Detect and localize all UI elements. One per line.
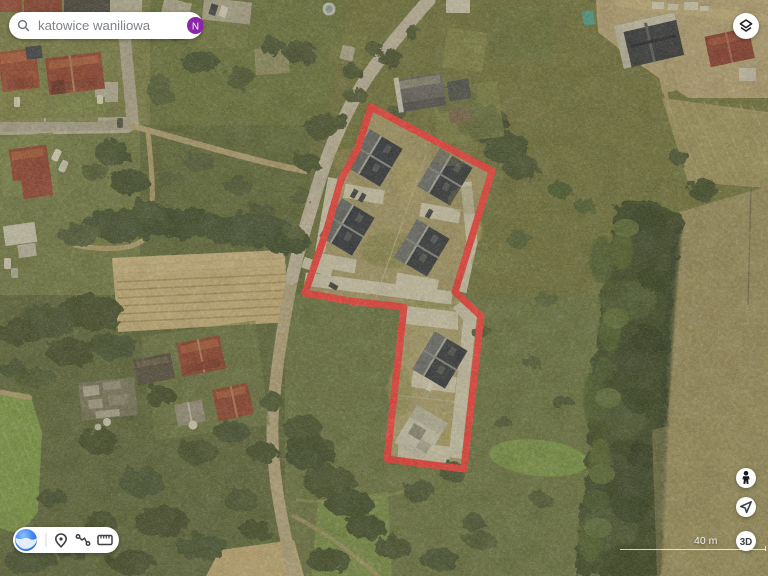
svg-text:N: N [192, 21, 199, 32]
svg-text:katowice waniliowa: katowice waniliowa [38, 18, 151, 33]
svg-text:3D: 3D [740, 537, 753, 548]
